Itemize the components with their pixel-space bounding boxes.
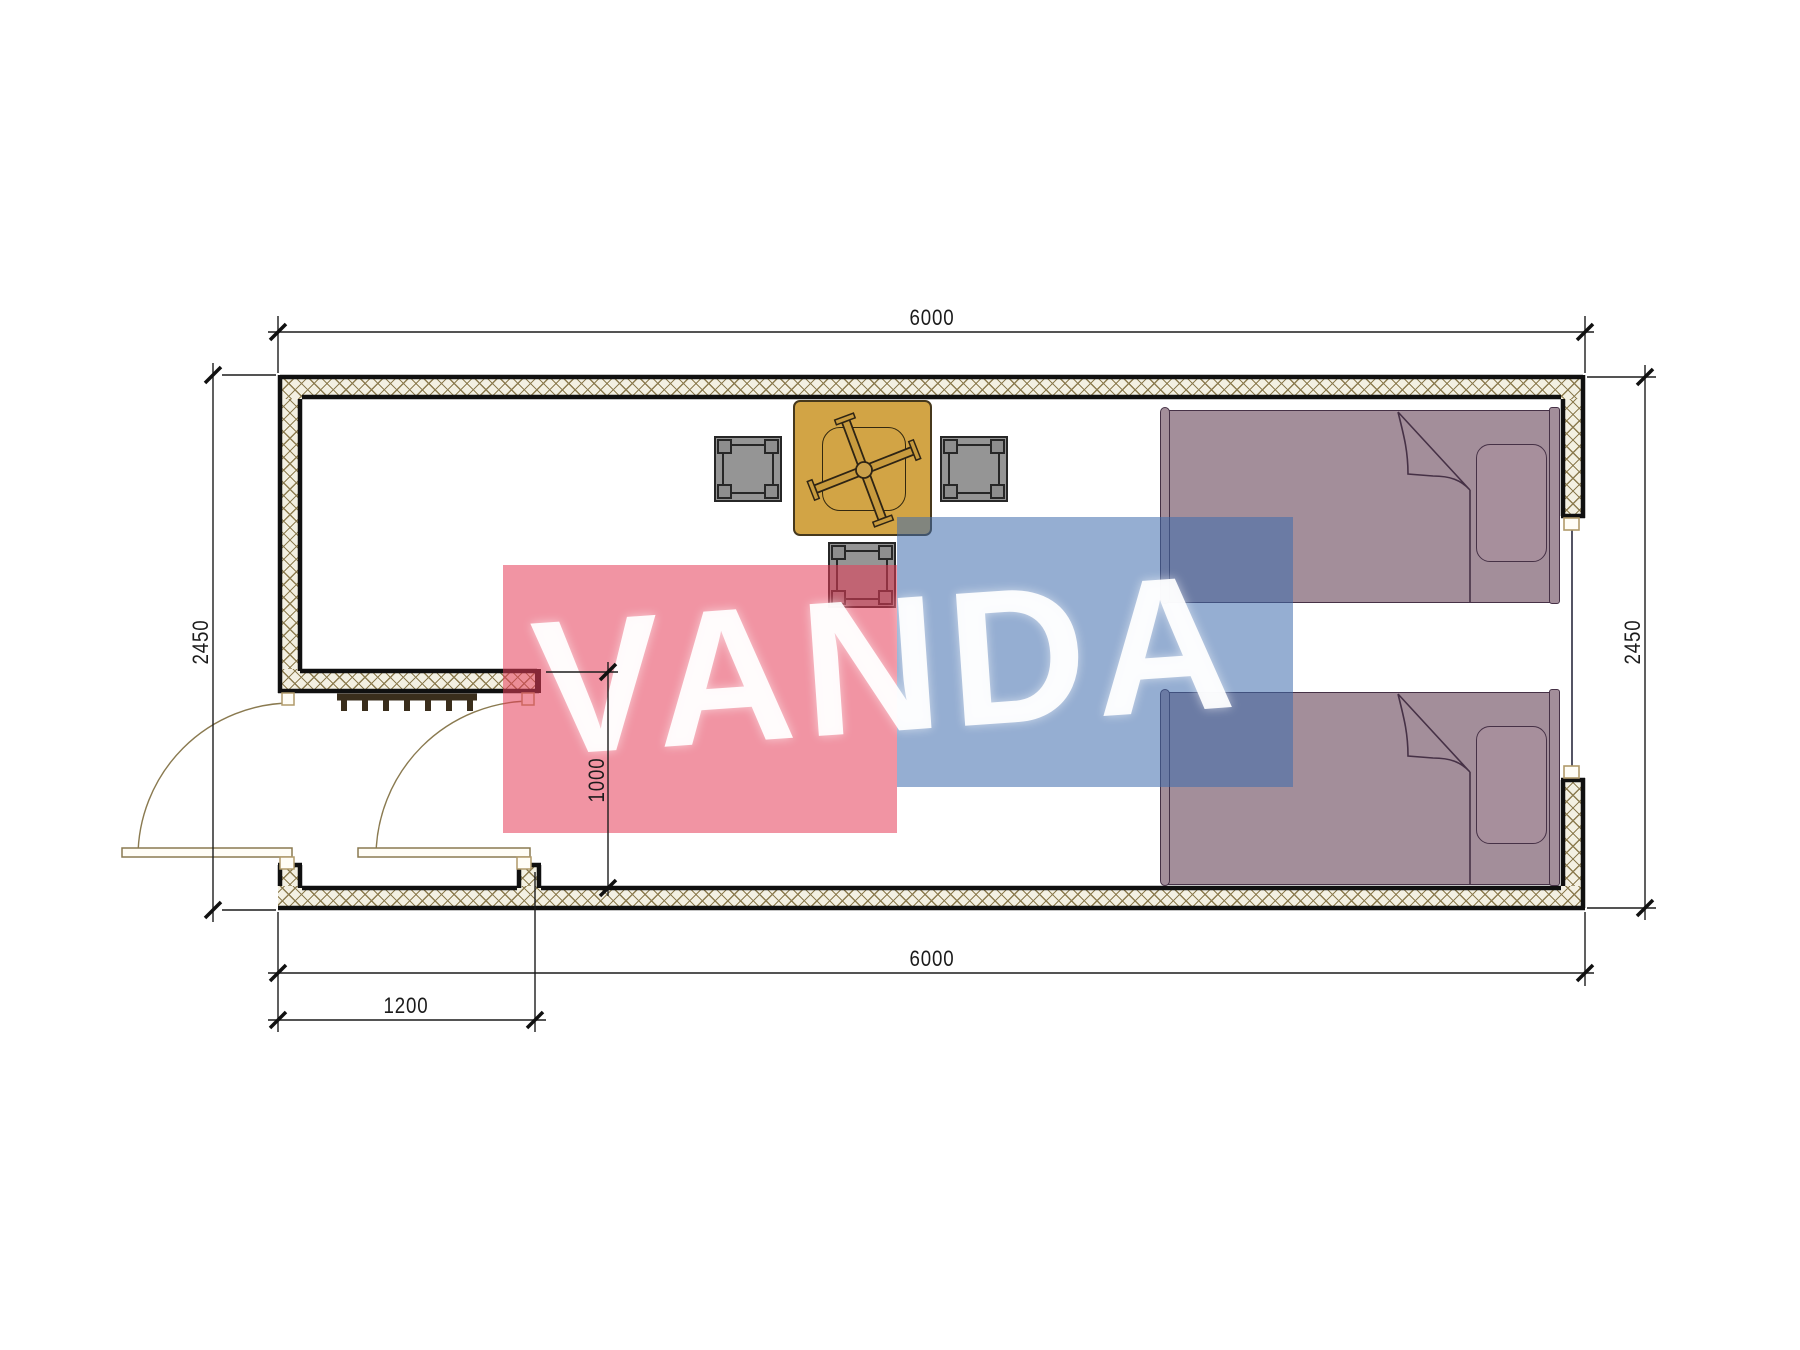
table <box>793 400 932 536</box>
door-swing-arc-left <box>138 703 292 857</box>
stool-right <box>940 436 1008 502</box>
dim-label-right-height: 2450 <box>1620 591 1646 693</box>
wall-right-lower <box>1561 778 1585 886</box>
watermark-text: VANDA <box>504 514 1270 816</box>
stool-left <box>714 436 782 502</box>
wall-porch-partition <box>278 669 541 693</box>
dim-label-top-width: 6000 <box>881 305 983 331</box>
wall-stub-left <box>278 863 302 886</box>
floor-plan-canvas: VANDA 6000 2450 2450 1000 6000 1200 <box>0 0 1800 1350</box>
wall-stub-right <box>517 863 541 886</box>
dim-label-porch-depth: 1000 <box>584 729 610 831</box>
wall-bottom <box>278 886 1585 910</box>
door-leaf-inner <box>358 848 530 857</box>
wall-right-upper <box>1561 399 1585 518</box>
dim-label-bottom-width: 6000 <box>881 946 983 972</box>
wall-top <box>278 375 1585 399</box>
dim-label-left-height: 2450 <box>188 591 214 693</box>
coat-rack <box>337 697 477 711</box>
door-leaf-left <box>122 848 292 857</box>
window-right <box>1564 518 1579 778</box>
door-left <box>122 693 294 869</box>
wall-left <box>278 399 302 669</box>
dim-label-porch-width: 1200 <box>355 993 457 1019</box>
